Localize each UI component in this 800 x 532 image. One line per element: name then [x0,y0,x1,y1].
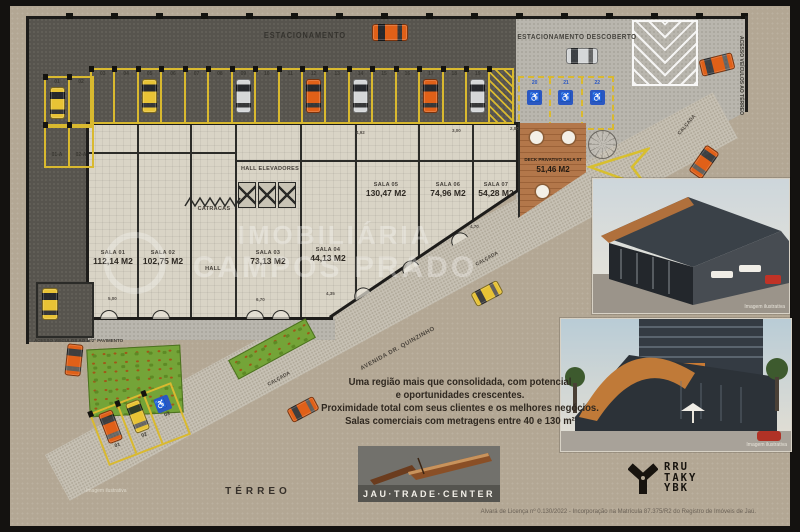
parking-spot-number: 17 [420,71,441,77]
parking-spot: 11 [278,70,301,122]
y-shaped-pixel-icon [628,461,658,495]
parking-spot: 02-A [68,126,92,166]
uncovered-parking-label: ESTACIONAMENTO DESCOBERTO [517,34,637,42]
license-text: Alvará de Licença nº 0.130/2022 - Incorp… [390,509,756,515]
parking-spot: 01-A [46,126,68,166]
parking-spot-number: 13 [326,71,347,77]
parking-spot: 15 [371,70,394,122]
room-sala-04: SALA 04 44,13 M2 [300,247,356,263]
deck-name-label: DECK PRIVATIVO SALA 07 [520,157,586,162]
studio-logo: RRU TAKY YBK [628,452,748,504]
parking-spot: 01 [46,78,68,126]
room-sala-01: SALA 01 112,14 M2 [85,250,141,266]
parking-spot: 05 [137,70,160,122]
parking-spot-number: 05 [139,71,160,77]
parking-spot-number: 16 [397,71,418,77]
no-parking-hatch-zone [632,20,698,86]
lot-boundary-right [745,16,748,112]
parking-spot: 14 [348,70,371,122]
car-icon [42,288,58,320]
parking-spot: 06 [160,70,183,122]
hall-elevadores-label: HALL ELEVADORES [233,166,307,172]
car-icon [372,24,408,41]
parking-spot: 13 [324,70,347,122]
marketing-line: Salas comerciais com metragens entre 40 … [313,415,608,428]
deck-table [530,131,543,144]
dimension-label: 3,00 [452,128,461,133]
parking-spot-number: 03 [92,71,113,77]
parking-spot: 08 [207,70,230,122]
parking-spot-number: 04 [115,71,136,77]
car-icon [64,343,83,376]
parking-spot-accessible: 22 ♿ [581,78,612,128]
dimension-label: 4,70 [470,224,479,229]
parking-spot-number: 07 [186,71,207,77]
parking-spot-number: 18 [444,71,465,77]
elevator-shaft [258,182,276,208]
deck-table [536,185,549,198]
dimension-label: 5,00 [108,296,117,301]
marketing-text: Uma região mais que consolidada, com pot… [313,376,608,428]
marketing-line: Proximidade total com seus clientes e os… [313,402,608,415]
parking-spot-number: 15 [373,71,394,77]
parking-spot: 12 [301,70,324,122]
car-icon [353,79,368,113]
parking-spot: 10 [254,70,277,122]
wall [235,124,237,318]
plan-illustrative-caption: Imagem ilustrativa [86,488,127,494]
dimension-label: 6,70 [256,297,265,302]
corner-parking-spots: 01 02 [44,76,94,128]
car-icon [470,79,485,113]
jau-trade-center-logo: JAU·TRADE·CENTER [358,446,500,502]
lot-boundary-left [26,16,29,344]
dimension-label: 4,92 [356,130,365,135]
rendering-illustration [593,179,789,313]
car-icon [566,48,598,64]
wall [300,124,302,318]
parking-spot: 16 [395,70,418,122]
marketing-line: e oportunidades crescentes. [313,389,608,402]
room-sala-07: SALA 07 54,28 M2 [468,182,524,198]
parking-spot-number: 08 [209,71,230,77]
rendering-caption: Imagem ilustrativa [744,304,785,310]
car-icon [142,79,157,113]
parking-spot-number: 12 [303,71,324,77]
parking-spot: 18 [442,70,465,122]
parking-spot-hatched [488,70,511,122]
room-sala-02: SALA 02 102,75 M2 [135,250,191,266]
ramp-access-label: ACESSO VEÍCULOS AO 1º/2º PAVIMENTO [34,338,144,343]
car-icon [423,79,438,113]
parking-spot: 04 [113,70,136,122]
wall [235,160,518,162]
car-icon [50,87,65,119]
catracas-label: CATRACAS [186,206,242,212]
parking-spot: 07 [184,70,207,122]
car-icon [306,79,321,113]
parking-spot: 17 [418,70,441,122]
floor-plan-poster: SALA 01 112,14 M2 SALA 02 102,75 M2 SALA… [0,0,800,532]
dimension-label: 2,80 [510,126,519,131]
parking-row: 0304050607080910111213141516171819 [90,68,514,124]
deck-area-label: 51,46 M2 [520,165,586,174]
deck-table [562,131,575,144]
covered-parking-label: ESTACIONAMENTO [245,32,365,41]
parking-spot-number: 09 [233,71,254,77]
parking-spot: 03 [92,70,113,122]
parking-spot-number: 06 [162,71,183,77]
wheelchair-icon: ♿ [527,90,542,105]
wall [88,152,235,154]
elevator-shaft [278,182,296,208]
wheelchair-icon: ♿ [558,90,573,105]
rendering-caption: Imagem ilustrativa [746,442,787,448]
hall-label: HALL [196,266,230,272]
building-outline [86,317,333,320]
parking-spot: 02 [68,78,92,126]
dimension-label: 4,35 [326,291,335,296]
side-access-label: ACESSO VEÍCULOS AO TÉRREO [738,36,744,115]
floor-title: TÉRREO [203,486,313,497]
parking-spot-number: 14 [350,71,371,77]
parking-spot-accessible: 21 ♿ [549,78,580,128]
parking-spot-number: 11 [280,71,301,77]
parking-spot: 09 [231,70,254,122]
room-sala-05: SALA 05 130,47 M2 [358,182,414,198]
parking-spot-number: 19 [467,71,488,77]
marketing-line: Uma região mais que consolidada, com pot… [313,376,608,389]
parking-spot: 19 [465,70,488,122]
accessible-parking-spots: 20 ♿ 21 ♿ 22 ♿ [518,76,614,130]
parking-spot-accessible: 20 ♿ [520,78,549,128]
room-sala-03: SALA 03 73,13 M2 [240,250,296,266]
lot-boundary-ticks [28,13,748,19]
studio-logo-text: RRU TAKY YBK [664,462,697,494]
jau-logo-graphic: JAU·TRADE·CENTER [358,446,500,502]
wheelchair-icon: ♿ [590,90,605,105]
building-rendering-top: Imagem ilustrativa [592,178,790,314]
car-icon [236,79,251,113]
corner-parking-spots-b: 01-A 02-A [44,124,94,168]
svg-text:JAU·TRADE·CENTER: JAU·TRADE·CENTER [363,489,495,499]
parking-spot-number: 10 [256,71,277,77]
